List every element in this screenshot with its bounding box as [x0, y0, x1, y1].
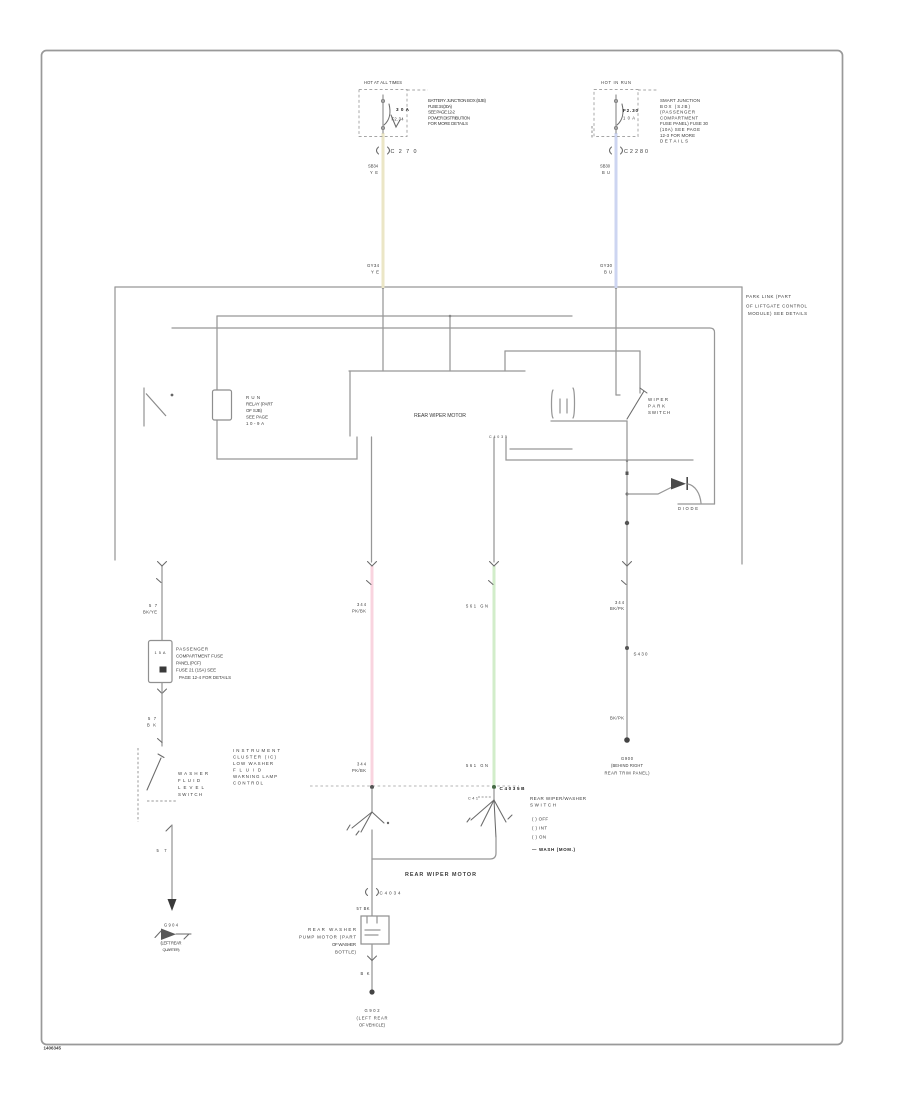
svg-text:SB30: SB30 — [600, 164, 611, 169]
svg-text:REAR WIPER MOTOR: REAR WIPER MOTOR — [414, 413, 466, 419]
svg-text:561 GN: 561 GN — [466, 604, 488, 609]
svg-text:FOR MORE DETAILS: FOR MORE DETAILS — [428, 121, 468, 126]
svg-text:COMPARTMENT: COMPARTMENT — [660, 115, 698, 120]
svg-text:1406345: 1406345 — [44, 1046, 62, 1051]
svg-text:BK/YE: BK/YE — [143, 610, 157, 615]
svg-text:S430: S430 — [634, 652, 649, 657]
svg-text:( ) OFF: ( ) OFF — [532, 817, 548, 822]
svg-text:SWITCH: SWITCH — [530, 803, 556, 808]
svg-text:PK/BK: PK/BK — [352, 768, 366, 773]
svg-text:G904: G904 — [164, 923, 179, 928]
svg-text:REAR WIPER MOTOR: REAR WIPER MOTOR — [405, 872, 476, 878]
svg-text:( ) INT: ( ) INT — [532, 826, 547, 831]
svg-text:FUSE PANEL) FUSE 30: FUSE PANEL) FUSE 30 — [660, 121, 709, 126]
svg-text:12-3 FOR MORE: 12-3 FOR MORE — [660, 133, 695, 138]
svg-text:REAR WASHER: REAR WASHER — [308, 927, 356, 932]
svg-text:LOW WASHER: LOW WASHER — [233, 761, 273, 766]
svg-text:PUMP MOTOR (PART: PUMP MOTOR (PART — [299, 935, 356, 940]
svg-text:PARK LINK (PART: PARK LINK (PART — [746, 294, 791, 299]
svg-text:(LEFT REAR: (LEFT REAR — [161, 941, 182, 946]
svg-text:F2.30: F2.30 — [623, 108, 638, 113]
svg-text:WARNING LAMP: WARNING LAMP — [233, 774, 277, 779]
svg-text:F2.34: F2.34 — [392, 117, 405, 122]
svg-text:RUN: RUN — [246, 395, 260, 400]
svg-text:GY30: GY30 — [600, 263, 613, 268]
svg-text:(LEFT REAR: (LEFT REAR — [357, 1016, 388, 1021]
svg-text:WIPER: WIPER — [648, 397, 668, 402]
svg-text:CLUSTER (IC): CLUSTER (IC) — [233, 755, 277, 760]
svg-text:SEE PAGE: SEE PAGE — [246, 415, 268, 420]
svg-text:15A: 15A — [155, 650, 166, 655]
svg-text:REAR WIPER/WASHER: REAR WIPER/WASHER — [530, 796, 587, 801]
svg-text:SWITCH: SWITCH — [178, 792, 202, 797]
svg-text:FUSE 21 (15A) SEE: FUSE 21 (15A) SEE — [176, 668, 216, 673]
svg-text:30A: 30A — [396, 107, 410, 112]
svg-text:SEE PAGE 12-2: SEE PAGE 12-2 — [428, 110, 456, 115]
svg-text:344: 344 — [357, 602, 367, 607]
svg-text:DIODE: DIODE — [678, 506, 698, 511]
svg-text:RELAY (PART: RELAY (PART — [246, 402, 273, 407]
svg-text:PANEL (PCF): PANEL (PCF) — [176, 661, 202, 666]
svg-text:57 BK: 57 BK — [357, 906, 370, 911]
svg-text:POWER DISTRIBUTION: POWER DISTRIBUTION — [428, 115, 470, 120]
svg-text:561 GN: 561 GN — [466, 763, 488, 768]
svg-text:OF VEHICLE): OF VEHICLE) — [359, 1023, 386, 1028]
svg-text:HOT IN RUN: HOT IN RUN — [601, 80, 631, 85]
svg-text:GY34: GY34 — [367, 263, 380, 268]
svg-text:BOTTLE): BOTTLE) — [335, 950, 357, 955]
svg-text:SMART JUNCTION: SMART JUNCTION — [660, 98, 700, 103]
svg-text:BU: BU — [604, 270, 612, 275]
svg-text:G900: G900 — [621, 756, 634, 761]
svg-text:C41: C41 — [468, 797, 478, 801]
svg-text:10A: 10A — [623, 116, 635, 121]
svg-text:(PASSENGER: (PASSENGER — [660, 110, 695, 115]
svg-text:BK/PK: BK/PK — [610, 606, 624, 611]
svg-text:OF WASHER: OF WASHER — [332, 942, 356, 947]
svg-text:344: 344 — [357, 762, 367, 767]
svg-text:SWITCH: SWITCH — [648, 410, 670, 415]
svg-text:CONTROL: CONTROL — [233, 781, 264, 786]
svg-text:QUARTER): QUARTER) — [163, 947, 181, 952]
svg-text:FUSE 34 (30A): FUSE 34 (30A) — [428, 104, 453, 109]
svg-text:COMPARTMENT FUSE: COMPARTMENT FUSE — [176, 654, 223, 659]
svg-text:(10A) SEE PAGE: (10A) SEE PAGE — [660, 127, 700, 132]
svg-text:BOX (SJB): BOX (SJB) — [660, 104, 691, 109]
svg-text:MODULE) SEE DETAILS: MODULE) SEE DETAILS — [748, 311, 807, 316]
svg-text:(BEHIND RIGHT: (BEHIND RIGHT — [611, 763, 643, 768]
svg-text:( ) ON: ( ) ON — [532, 835, 546, 840]
svg-text:BK/PK: BK/PK — [610, 716, 624, 721]
svg-text:PARK: PARK — [648, 404, 665, 409]
svg-text:G902: G902 — [365, 1008, 381, 1013]
svg-text:— WASH (MOM.): — WASH (MOM.) — [532, 847, 576, 852]
svg-text:BATTERY JUNCTION BOX (BJB): BATTERY JUNCTION BOX (BJB) — [428, 98, 487, 103]
svg-text:HOT AT ALL TIMES: HOT AT ALL TIMES — [364, 80, 402, 85]
svg-text:PASSENGER: PASSENGER — [176, 647, 208, 652]
svg-text:OF LIFTGATE CONTROL: OF LIFTGATE CONTROL — [746, 304, 808, 309]
svg-text:PK/BK: PK/BK — [352, 609, 366, 614]
svg-text:PAGE 12-4 FOR DETAILS: PAGE 12-4 FOR DETAILS — [179, 675, 231, 680]
svg-text:344: 344 — [615, 600, 625, 605]
svg-text:OF SJB): OF SJB) — [246, 408, 263, 413]
svg-text:C2280: C2280 — [624, 149, 648, 155]
svg-text:SB34: SB34 — [368, 164, 379, 169]
svg-text:REAR TRIM PANEL): REAR TRIM PANEL) — [605, 771, 651, 776]
